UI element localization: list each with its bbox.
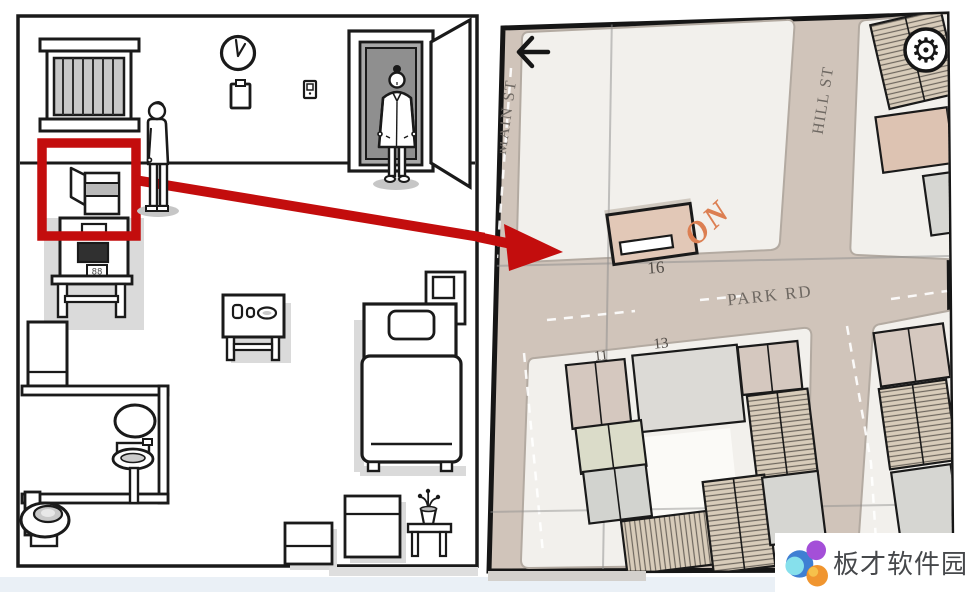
window[interactable] [40,39,139,131]
map-building-tan-b [875,107,954,172]
table-item-1[interactable] [233,305,242,318]
wall-clock[interactable] [222,37,255,70]
machine-screen [78,243,108,262]
watermark-logo [781,539,828,587]
map-building-11[interactable] [566,359,631,429]
bed[interactable] [362,304,461,471]
table-item-2[interactable] [247,308,254,317]
map-building-tan-c [874,323,951,386]
house-number-11: 11 [594,348,609,364]
room-drop-shadow [329,567,478,576]
screenshot-stage: 88 [0,0,968,592]
map-building-tan-a [738,341,803,395]
map-building-13[interactable] [632,345,744,433]
map-building-gray-c [923,171,968,236]
house-number-16: 16 [647,257,665,277]
open-door-panel [431,20,470,187]
mirror[interactable] [115,405,155,437]
side-table[interactable] [223,295,284,360]
room-panel: 88 [0,0,485,592]
machine[interactable]: 88 [60,218,128,278]
watermark: 板才软件园 [775,533,968,592]
clipboard[interactable] [231,80,250,108]
house-number-13: 13 [653,335,670,352]
gear-icon: ⚙ [911,31,941,71]
nurse-shadow [373,178,419,190]
cabinet[interactable] [28,322,67,386]
pillow [389,311,434,339]
switch-panel[interactable] [304,81,316,98]
map-panel: ON 16 [485,0,968,592]
watermark-text: 板才软件园 [833,544,968,581]
dresser[interactable] [345,496,400,557]
nurse-hair-bun [393,65,401,73]
settings-button[interactable]: ⚙ [905,29,947,71]
map-drop-shadow [488,571,646,581]
map-building-hatched-e [879,380,958,470]
map-building-gray-a [583,464,652,523]
map-building-hatched-b [621,511,713,575]
map-building-hatched-a [747,389,818,484]
storage-box[interactable] [285,523,332,564]
